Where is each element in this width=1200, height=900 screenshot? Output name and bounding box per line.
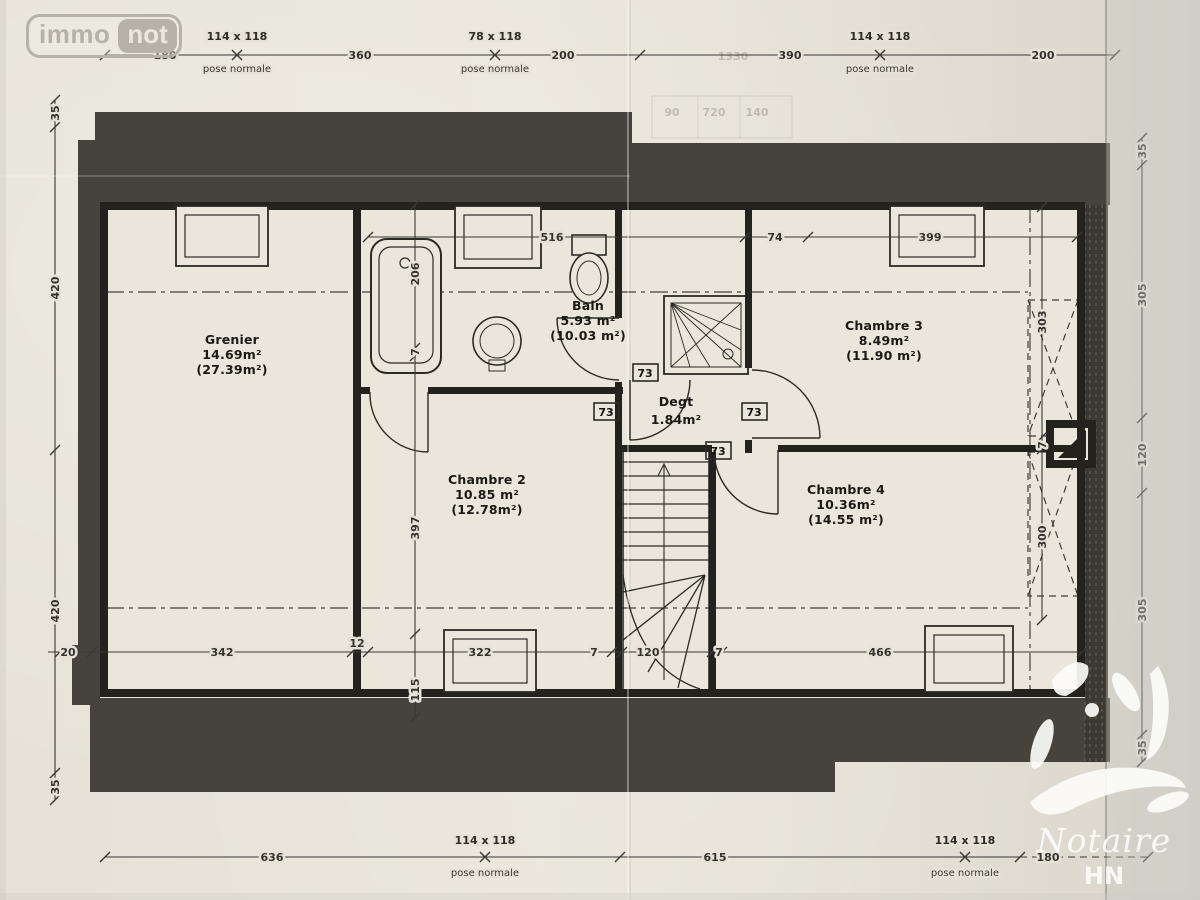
dim-label: 420 (49, 276, 62, 299)
window-pose-tag: pose normale (203, 64, 271, 75)
dim-label: 35 (49, 105, 62, 120)
ghost-number: 140 (746, 106, 769, 119)
dim-label: 20 (60, 646, 76, 659)
bathtub (371, 239, 441, 373)
room-name-degt: Degt (659, 394, 694, 409)
floor-plan-drawing: 1330 90 720 140 (0, 0, 1200, 900)
page-right-margin (1106, 0, 1200, 900)
wall-grenier (353, 202, 361, 697)
window-pose-tag: pose normale (451, 868, 519, 879)
dim-label: 516 (541, 231, 564, 244)
immonot-logo-immo: immo (31, 19, 118, 53)
window-size-tag: 78 x 118 (468, 30, 521, 43)
dim-label: 300 (1036, 525, 1049, 548)
wall-stairs-west (615, 382, 622, 697)
window-pose-tag: pose normale (846, 64, 914, 75)
ghost-number: 720 (703, 106, 726, 119)
toilet (570, 235, 608, 303)
dim-label: 390 (779, 49, 802, 62)
wall-chambre4-west (709, 452, 716, 697)
ghost-bleed-through: 1330 90 720 140 (652, 50, 792, 138)
dim-label: 303 (1036, 311, 1049, 334)
dim-label: 12 (349, 637, 364, 650)
dim-label: 360 (349, 49, 372, 62)
room-name-grenier: Grenier (205, 332, 260, 347)
window-size-tag: 114 x 118 (935, 834, 996, 847)
dim-label: 636 (261, 851, 284, 864)
room-area-chambre4: 10.36m² (816, 497, 875, 512)
dim-label: 466 (869, 646, 892, 659)
wall-bain-east (615, 202, 622, 318)
room-area-chambre2: 10.85 m² (455, 487, 519, 502)
room-area-chambre3: 8.49m² (859, 333, 910, 348)
shaded-zone-bottom-left (90, 698, 835, 792)
dim-label: 7 (590, 646, 598, 659)
room-floor-area-grenier: (27.39m²) (196, 362, 267, 377)
room-floor-area-chambre2: (12.78m²) (451, 502, 522, 517)
room-floor-area-bain: (10.03 m²) (550, 328, 626, 343)
dim-label: 200 (1032, 49, 1055, 62)
dim-label: 7 (715, 646, 723, 659)
room-name-chambre2: Chambre 2 (448, 472, 526, 487)
window-pose-tag: pose normale (461, 64, 529, 75)
room-area-degt: 1.84m² (651, 412, 702, 427)
shaded-zone-top-right (632, 143, 1110, 205)
dim-label: 420 (49, 599, 62, 622)
dim-label: 120 (637, 646, 660, 659)
chimney (1046, 420, 1096, 468)
dim-label: 115 (409, 679, 422, 702)
dim-label: 206 (409, 262, 422, 285)
ghost-number: 1330 (718, 50, 749, 63)
window-size-tag: 114 x 118 (850, 30, 911, 43)
dim-label: 200 (552, 49, 575, 62)
roof-window-chambre4 (925, 626, 1013, 692)
door-width-label: 73 (598, 406, 613, 419)
door-width-label: 73 (746, 406, 761, 419)
window-pose-tag: pose normale (931, 868, 999, 879)
dim-label: 615 (704, 851, 727, 864)
ghost-number: 90 (664, 106, 680, 119)
dim-label: 397 (409, 517, 422, 540)
room-floor-area-chambre3: (11.90 m²) (846, 348, 922, 363)
room-floor-area-chambre4: (14.55 m²) (808, 512, 884, 527)
shower (664, 296, 748, 374)
wall-bain-south (353, 387, 370, 394)
room-name-bain: Bain (572, 298, 604, 313)
door-width-label: 73 (710, 445, 725, 458)
immonot-logo: immo not (26, 14, 182, 58)
shaded-zone-bottom-right (835, 698, 1110, 762)
door-width-label: 73 (637, 367, 652, 380)
dim-label: 342 (211, 646, 234, 659)
dim-label: 180 (1037, 851, 1060, 864)
roof-window-chambre2 (444, 630, 536, 692)
dim-label: 35 (49, 779, 62, 794)
room-area-bain: 5.93 m² (560, 313, 615, 328)
hatched-right-wall (1085, 205, 1108, 762)
wall-chambre3-west (745, 202, 752, 368)
dim-label: 74 (767, 231, 783, 244)
dim-label: 399 (919, 231, 942, 244)
dim-label: 7 (409, 348, 422, 356)
room-area-grenier: 14.69m² (202, 347, 261, 362)
shaded-zone-top-left (95, 112, 632, 202)
wall-left (100, 202, 108, 697)
dim-label: 322 (469, 646, 492, 659)
roof-window-grenier (176, 206, 268, 266)
room-name-chambre3: Chambre 3 (845, 318, 923, 333)
room-name-chambre4: Chambre 4 (807, 482, 885, 497)
immonot-logo-not: not (118, 19, 176, 53)
wall-chambre3-west (745, 440, 752, 453)
window-size-tag: 114 x 118 (455, 834, 516, 847)
wall-bain-south (428, 387, 623, 394)
scanned-floor-plan-page: 1330 90 720 140 (0, 0, 1200, 900)
window-size-tag: 114 x 118 (207, 30, 268, 43)
dim-label: 7 (1036, 441, 1049, 449)
